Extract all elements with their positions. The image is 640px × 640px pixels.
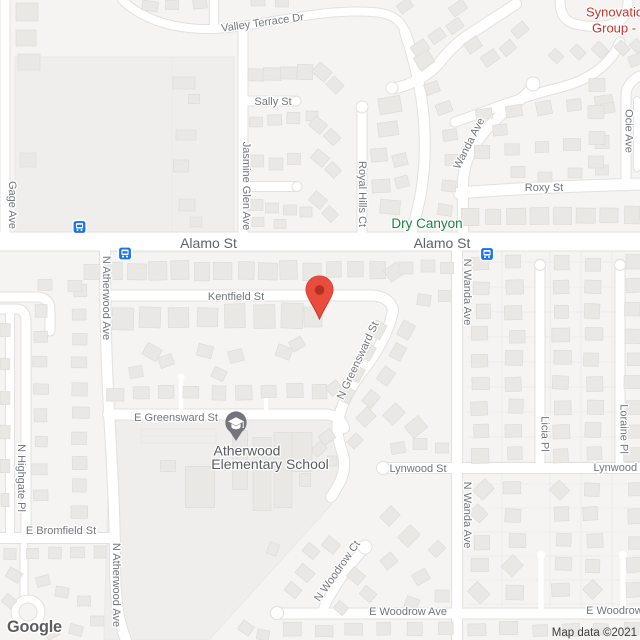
svg-text:N Highgate Pl: N Highgate Pl — [15, 444, 27, 512]
svg-text:E Woodrow Ave: E Woodrow Ave — [369, 606, 447, 618]
svg-text:Lynwood St: Lynwood St — [389, 463, 446, 475]
svg-text:Gage Ave: Gage Ave — [6, 181, 18, 229]
svg-text:Map data ©2021: Map data ©2021 — [552, 627, 637, 639]
svg-text:Ocie Ave: Ocie Ave — [623, 109, 635, 153]
svg-text:E Greensward St: E Greensward St — [134, 412, 218, 424]
svg-text:Lynwood St: Lynwood St — [593, 462, 640, 474]
svg-text:Sally St: Sally St — [254, 96, 291, 108]
svg-text:Dry Canyon: Dry Canyon — [391, 216, 462, 231]
svg-text:E Woodrow Ave: E Woodrow Ave — [586, 605, 640, 617]
svg-text:Alamo St: Alamo St — [180, 235, 237, 251]
svg-text:Google: Google — [7, 618, 62, 636]
svg-text:Jasmine Glen Ave: Jasmine Glen Ave — [240, 142, 252, 230]
svg-text:N Atherwood Ave: N Atherwood Ave — [110, 543, 122, 627]
svg-text:E Bromfield St: E Bromfield St — [26, 525, 96, 537]
svg-text:Synovation: Synovation — [586, 5, 640, 20]
svg-text:Royal Hills Ct: Royal Hills Ct — [356, 161, 368, 227]
svg-text:Licia Pl: Licia Pl — [539, 416, 551, 451]
svg-text:N Wanda Ave: N Wanda Ave — [461, 482, 473, 549]
svg-text:N Wanda Ave: N Wanda Ave — [461, 259, 473, 326]
svg-text:Group - Si: Group - Si — [592, 21, 640, 36]
svg-text:Elementary School: Elementary School — [211, 456, 329, 472]
svg-text:Alamo St: Alamo St — [414, 235, 471, 251]
svg-text:Loraine Pl: Loraine Pl — [618, 404, 630, 454]
svg-text:Kentfield St: Kentfield St — [208, 291, 264, 303]
svg-text:Roxy St: Roxy St — [525, 182, 564, 194]
svg-text:N Atherwood Ave: N Atherwood Ave — [100, 256, 112, 340]
